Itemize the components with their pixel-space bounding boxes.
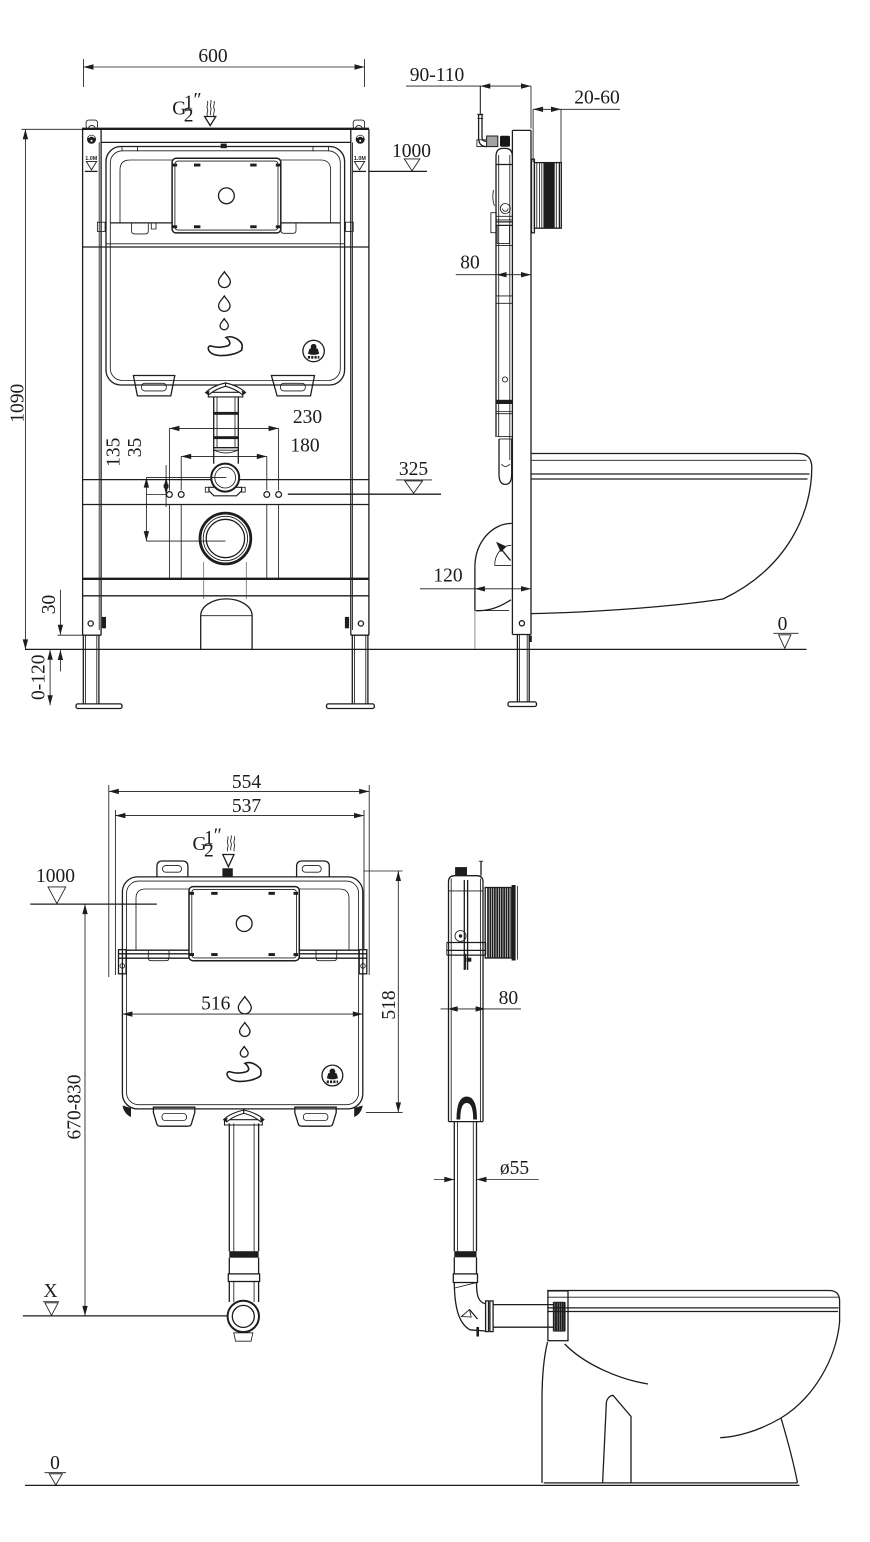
svg-text:0: 0 bbox=[778, 614, 788, 635]
svg-text:ø55: ø55 bbox=[500, 1158, 529, 1179]
svg-text:516: 516 bbox=[201, 994, 231, 1015]
svg-text:2: 2 bbox=[204, 841, 214, 862]
svg-text:230: 230 bbox=[293, 407, 322, 428]
svg-text:80: 80 bbox=[499, 988, 519, 1009]
svg-text:554: 554 bbox=[232, 772, 262, 793]
svg-text:″: ″ bbox=[214, 825, 222, 846]
svg-text:135: 135 bbox=[103, 438, 124, 467]
svg-text:518: 518 bbox=[379, 990, 400, 1019]
svg-text:1000: 1000 bbox=[36, 866, 75, 887]
svg-text:90-110: 90-110 bbox=[410, 65, 465, 86]
svg-text:2: 2 bbox=[184, 105, 194, 126]
svg-text:670-830: 670-830 bbox=[65, 1075, 86, 1140]
svg-text:0: 0 bbox=[50, 1453, 60, 1474]
svg-text:″: ″ bbox=[193, 90, 201, 111]
svg-text:120: 120 bbox=[433, 566, 462, 587]
svg-text:30: 30 bbox=[39, 595, 60, 615]
svg-text:600: 600 bbox=[198, 46, 227, 67]
svg-text:0-120: 0-120 bbox=[29, 655, 50, 701]
svg-text:325: 325 bbox=[399, 459, 428, 480]
svg-text:180: 180 bbox=[290, 435, 319, 456]
svg-text:X: X bbox=[44, 1281, 58, 1302]
svg-text:537: 537 bbox=[232, 796, 262, 817]
svg-text:80: 80 bbox=[460, 253, 480, 274]
svg-text:20-60: 20-60 bbox=[574, 88, 620, 109]
svg-text:35: 35 bbox=[125, 438, 146, 458]
